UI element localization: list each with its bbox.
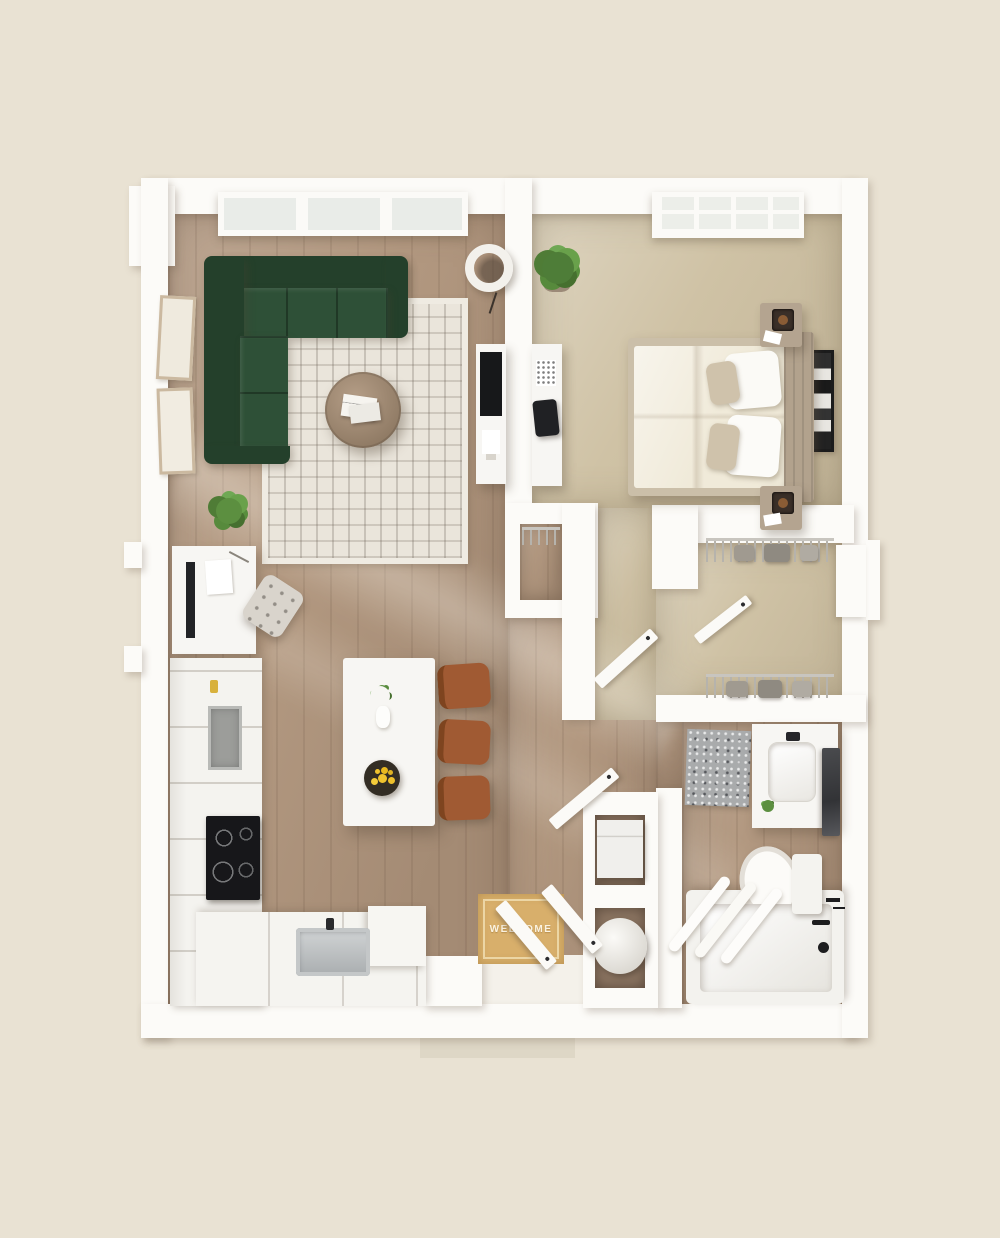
kitchen-sink: [296, 928, 370, 976]
wall-left-tab: [124, 542, 142, 568]
closet-shelf-unit: [836, 545, 866, 617]
wall-left-tab: [124, 646, 142, 672]
bed-accent-pillow: [705, 360, 741, 406]
papasan-chair: [465, 244, 513, 292]
wall-bathroom-top: [656, 695, 866, 722]
bed-accent-pillow: [705, 422, 740, 471]
toilet-tank: [792, 854, 822, 914]
carpet-vestibule: [595, 508, 658, 720]
wall-bottom: [141, 1004, 857, 1038]
potted-plant-bedroom: [542, 252, 574, 284]
lemons: [378, 774, 387, 783]
wall-art-frame: [156, 295, 196, 381]
potted-plant-living: [216, 498, 242, 524]
wall-closet-stub: [652, 505, 698, 589]
vanity-sink-basin: [768, 742, 816, 802]
wall-right-closet-bump: [866, 540, 880, 620]
sofa-seats-top: [238, 288, 388, 338]
tub-drain-knob: [818, 942, 829, 953]
vanity-plant: [762, 800, 774, 812]
vanity-faucet: [786, 732, 800, 741]
dishwasher-block: [368, 906, 426, 966]
kitchen-island: [343, 658, 435, 826]
sofa-back-left: [204, 256, 244, 456]
sink-faucet: [326, 918, 334, 930]
sofa-armrest-bottom: [204, 446, 290, 464]
floor-plan-scene: WELCOME: [0, 0, 1000, 1238]
wall-entry-side-stub: [424, 956, 482, 1006]
table-lamp-south: [772, 492, 794, 514]
dining-chair: [437, 662, 492, 710]
window-living-room: [218, 192, 468, 236]
wall-living-bedroom-divider: [505, 178, 532, 508]
wall-art-frame: [157, 387, 196, 474]
coat-closet-hanger-rod: [522, 527, 560, 545]
bathroom-mirror: [822, 748, 840, 836]
closet-hanger-rod-top: [706, 538, 834, 562]
bed-headboard: [784, 332, 814, 502]
bedroom-desk-chair: [532, 399, 560, 437]
wall-vestibule-left: [562, 503, 595, 720]
desk-paper: [205, 559, 233, 595]
table-lamp-north: [772, 309, 794, 331]
island-vase: [376, 706, 390, 728]
sofa-seats-left: [240, 336, 288, 448]
closet-hanger-rod-bottom: [706, 674, 834, 698]
desk-laptop: [186, 562, 195, 638]
sofa-armrest-right: [386, 256, 408, 338]
dish-soap: [210, 680, 218, 693]
toilet-paper-holder: [826, 898, 840, 902]
wall-oven: [208, 706, 242, 770]
island-flowers: [370, 686, 390, 706]
cooktop: [206, 816, 260, 900]
console-decor: [482, 430, 500, 454]
tub-faucet: [812, 920, 830, 925]
bath-mat: [685, 729, 752, 807]
tv-screen: [480, 352, 502, 416]
dining-chair: [437, 719, 491, 766]
magazines: [349, 402, 381, 424]
dining-chair: [437, 775, 491, 821]
bedroom-desk-papers: [536, 360, 556, 386]
washer-cube: [597, 820, 643, 878]
window-bedroom: [652, 192, 804, 238]
wall-bathroom-left: [656, 788, 682, 1008]
